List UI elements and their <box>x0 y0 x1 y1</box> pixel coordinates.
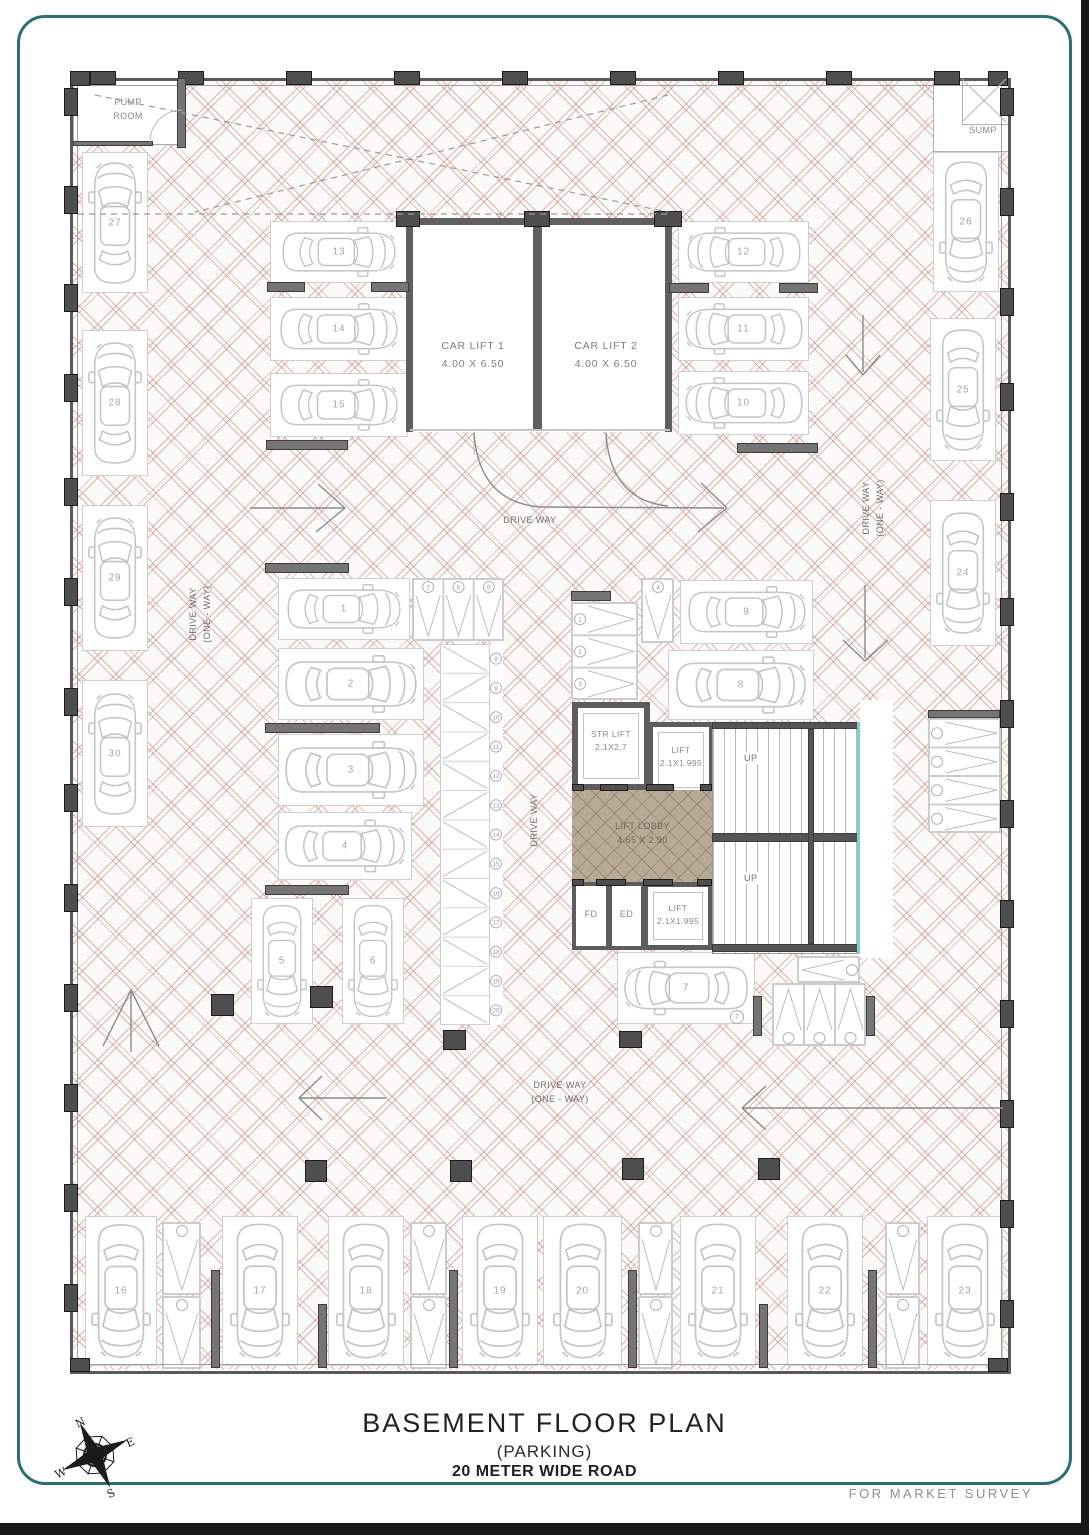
floor-column <box>310 986 333 1008</box>
wall-column <box>1000 493 1014 521</box>
plan-subtitle: (PARKING) <box>0 1442 1089 1462</box>
lift-lobby-size: 4.65 X 2.90 <box>575 834 710 848</box>
wall-column <box>64 1084 78 1112</box>
wall-column <box>64 1184 78 1212</box>
str-lift-name: STR LIFT <box>576 728 646 741</box>
wall-stub <box>571 591 611 601</box>
car-lift-2-name: CAR LIFT 2 <box>541 338 671 356</box>
floor-column <box>211 994 234 1016</box>
wall-column <box>1000 1200 1014 1228</box>
wall-stub <box>737 443 818 453</box>
wall-stub <box>265 563 349 573</box>
wall-stub <box>928 710 1000 718</box>
drive-way-right-line1: DRIVE WAY <box>860 463 874 553</box>
wall-stub <box>753 996 762 1036</box>
wall-stub <box>371 282 409 292</box>
fd-label: FD <box>572 908 610 922</box>
wall-column <box>64 884 78 912</box>
wall-column <box>64 1284 78 1312</box>
wall-column <box>90 71 116 85</box>
drive-way-label-bottom: DRIVE WAY (ONE - WAY) <box>515 1079 605 1106</box>
wall-stub <box>265 723 380 733</box>
wall-column <box>1000 1100 1014 1128</box>
wall-column <box>286 71 312 85</box>
wall-column <box>1000 1300 1014 1328</box>
wall-column <box>64 688 78 716</box>
str-lift-label: STR LIFT 2.1X2.7 <box>576 728 646 754</box>
pump-room-wall-bottom <box>73 141 153 146</box>
drive-way-left-line2: (ONE - WAY) <box>201 569 215 659</box>
car-lift-threshold <box>410 429 670 431</box>
wall-stub <box>628 1270 637 1368</box>
market-survey-note: FOR MARKET SURVEY <box>849 1486 1033 1501</box>
sump-label: SUMP <box>958 124 1008 138</box>
wall-column <box>1000 383 1014 411</box>
lift-top-size: 2.1X1.995 <box>650 757 712 770</box>
car-lift-2-size: 4.00 X 6.50 <box>541 356 671 374</box>
scan-edge-right <box>1081 0 1089 1535</box>
wall-stub <box>669 283 709 293</box>
wall-stub <box>779 283 818 293</box>
drive-way-bottom-line1: DRIVE WAY <box>515 1079 605 1093</box>
car-lift-divider-wall <box>533 218 542 430</box>
floor-column <box>758 1158 780 1180</box>
wall-column <box>826 71 852 85</box>
lobby-door-jamb <box>572 879 584 886</box>
lobby-door-jamb <box>600 784 628 791</box>
lift-lobby-name: LIFT LOBBY <box>575 820 710 834</box>
wall-column <box>64 374 78 402</box>
wall-stub <box>265 885 349 895</box>
car-lift-2-label: CAR LIFT 2 4.00 X 6.50 <box>541 338 671 374</box>
floor-column <box>305 1160 327 1182</box>
corner-column <box>988 71 1008 86</box>
lift-column <box>654 211 682 227</box>
drive-way-left-line1: DRIVE WAY <box>187 569 201 659</box>
lift-column <box>396 211 420 227</box>
wall-stub <box>866 996 875 1036</box>
lift-bottom-label: LIFT 2.1X1.995 <box>645 902 711 928</box>
drive-way-right-line2: (ONE - WAY) <box>874 463 888 553</box>
wall-column <box>610 71 636 85</box>
lift-top-name: LIFT <box>650 744 712 757</box>
wall-column <box>1000 88 1014 116</box>
drive-way-label-center: DRIVE WAY <box>470 514 590 528</box>
floor-column <box>622 1158 644 1180</box>
wall-column <box>934 71 960 85</box>
wall-column <box>1000 288 1014 316</box>
wall-stub <box>868 1270 877 1368</box>
wall-stub <box>318 1304 327 1368</box>
plan-title: BASEMENT FLOOR PLAN <box>0 1408 1089 1439</box>
drive-way-bottom-line2: (ONE - WAY) <box>515 1093 605 1107</box>
wall-column <box>1000 900 1014 928</box>
drive-way-label-right: DRIVE WAY (ONE - WAY) <box>860 463 894 553</box>
ed-label: ED <box>608 908 645 922</box>
car-lift-1-name: CAR LIFT 1 <box>410 338 536 356</box>
compass-s: S <box>105 1486 117 1501</box>
lobby-door-jamb <box>643 879 673 886</box>
corner-column <box>70 71 90 86</box>
car-lift-1-label: CAR LIFT 1 4.00 X 6.50 <box>410 338 536 374</box>
floor-column <box>443 1030 466 1050</box>
stair-wall-bottom <box>712 944 858 952</box>
lift-top-label: LIFT 2.1X1.995 <box>650 744 712 770</box>
corner-column <box>70 1358 90 1372</box>
visitor-circle-marker: 7 <box>730 1010 744 1024</box>
wall-column <box>1000 800 1014 828</box>
lobby-door-jamb <box>596 879 626 886</box>
floor-column <box>619 1031 642 1048</box>
wall-column <box>64 186 78 214</box>
wall-stub <box>449 1270 458 1368</box>
wall-column <box>64 478 78 506</box>
floor-column <box>450 1160 472 1182</box>
wall-stub <box>759 1304 768 1368</box>
wall-column <box>1000 1000 1014 1028</box>
plan-road-note: 20 METER WIDE ROAD <box>0 1463 1089 1481</box>
drive-way-label-middle: DRIVE WAY <box>528 775 544 865</box>
wall-stub <box>211 1270 220 1368</box>
pump-room-label-line1: PUMP <box>73 96 183 110</box>
lift-column <box>524 211 550 227</box>
lift-bottom-name: LIFT <box>645 902 711 915</box>
stair-wall-top <box>712 722 858 729</box>
wall-column <box>718 71 744 85</box>
lobby-door-jamb <box>646 784 674 791</box>
car-lift-1-size: 4.00 X 6.50 <box>410 356 536 374</box>
wall-column <box>394 71 420 85</box>
stair-up-label-bottom: UP <box>741 872 761 884</box>
stair-glass-strip <box>857 722 860 954</box>
wall-stub <box>267 282 305 292</box>
lift-bottom-size: 2.1X1.995 <box>645 915 711 928</box>
lift-lobby-label: LIFT LOBBY 4.65 X 2.90 <box>575 820 710 847</box>
scan-edge-bottom <box>0 1523 1089 1535</box>
pump-room-label: PUMP ROOM <box>73 96 183 123</box>
wall-column <box>1000 598 1014 626</box>
wall-column <box>502 71 528 85</box>
wall-stub <box>266 440 348 450</box>
lobby-door-jamb <box>697 879 712 886</box>
stair-flight-divider <box>808 729 814 944</box>
corner-column <box>988 1358 1008 1372</box>
wall-column <box>1000 700 1014 728</box>
drive-way-label-left: DRIVE WAY (ONE - WAY) <box>187 569 221 659</box>
wall-column <box>64 284 78 312</box>
stair-up-label-top: UP <box>741 752 761 764</box>
sheet: 1234567891011121314151617181920212223242… <box>0 0 1089 1535</box>
lobby-door-jamb <box>700 784 712 791</box>
pump-room-label-line2: ROOM <box>73 110 183 124</box>
wall-column <box>64 578 78 606</box>
wall-column <box>64 784 78 812</box>
lobby-door-jamb <box>572 784 584 791</box>
stair-mid-landing-wall <box>712 833 858 842</box>
str-lift-size: 2.1X2.7 <box>576 741 646 754</box>
wall-column <box>1000 188 1014 216</box>
wall-column <box>64 984 78 1012</box>
